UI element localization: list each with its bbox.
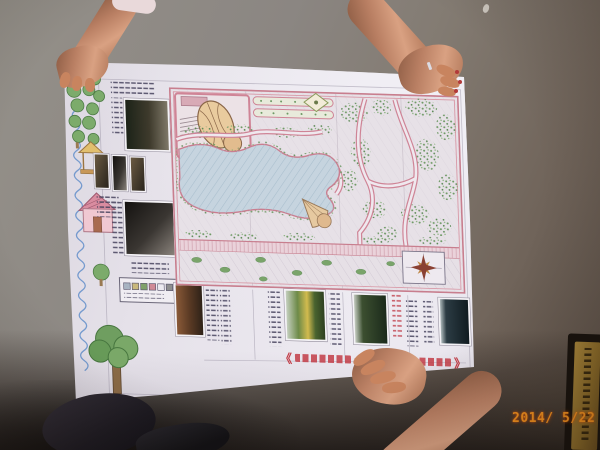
title-close-bracket: 》 <box>280 352 292 364</box>
fingernail <box>454 89 458 93</box>
plaque-text <box>581 348 591 440</box>
site-photo <box>93 153 110 190</box>
legend-swatch <box>141 283 148 290</box>
compass-rose-icon <box>402 251 445 284</box>
site-photo <box>123 200 177 258</box>
legend-swatch <box>124 283 131 290</box>
site-photo <box>123 98 171 152</box>
legend-box <box>119 278 178 304</box>
map-panel <box>169 87 466 294</box>
fingernail <box>458 80 462 84</box>
door-plaque <box>564 333 600 450</box>
legend-swatch <box>149 284 156 291</box>
finger <box>85 78 96 93</box>
site-photo <box>284 289 328 342</box>
big-tree-drawing <box>88 325 139 395</box>
small-tree-drawing <box>93 264 110 286</box>
plaque-face <box>571 342 600 450</box>
site-photo <box>352 293 390 346</box>
site-photo <box>174 282 206 337</box>
legend-swatch <box>158 284 165 291</box>
legend-swatch <box>132 283 139 290</box>
fingernail <box>455 70 459 74</box>
legend-swatch <box>166 284 173 291</box>
site-photo <box>111 154 128 192</box>
site-photo <box>438 297 472 346</box>
title-open-bracket: 《 <box>454 357 466 369</box>
photo-scene: 《 —— 》 2014/ 5/22 <box>0 0 600 450</box>
camera-datestamp: 2014/ 5/22 <box>512 411 595 426</box>
title-handwriting <box>295 354 351 364</box>
red-annotation <box>392 293 403 337</box>
site-photo <box>129 156 146 193</box>
